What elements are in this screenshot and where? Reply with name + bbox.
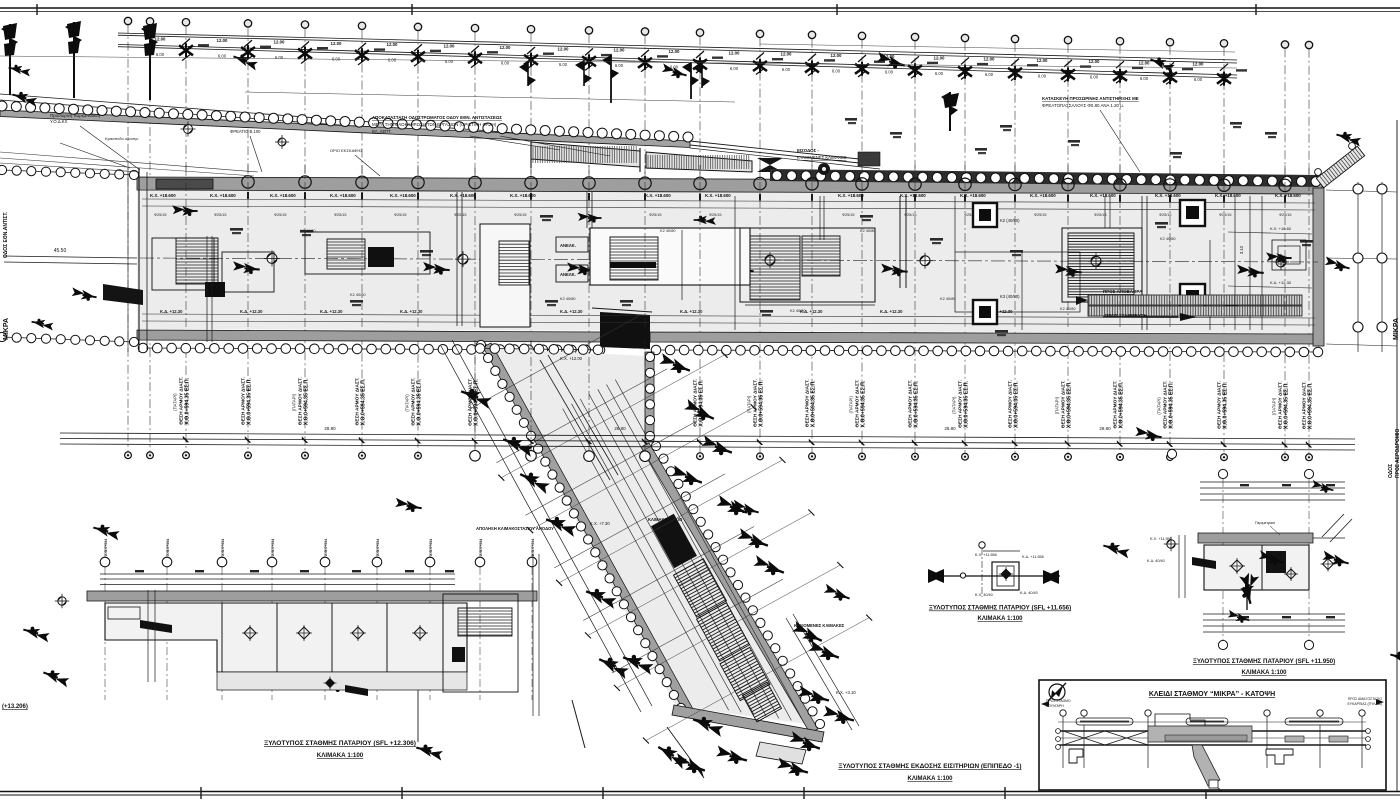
svg-text:Φ25/15: Φ25/15: [394, 213, 407, 217]
svg-text:Χ.Θ.0+594: Χ.Θ.0+594: [479, 539, 483, 556]
svg-text:ΘΕΣΗ ΑΡΜΟΥ ΔΙΑΣΤ.: ΘΕΣΗ ΑΡΜΟΥ ΔΙΑΣΤ.: [297, 377, 303, 425]
svg-text:Κ.Χ. +18.600: Κ.Χ. +18.600: [1090, 193, 1116, 198]
svg-text:ΞΥΛΟΤΥΠΟΣ ΣΤΑΘΜΗΣ ΠΑΤΑΡΙΟΥ (SF: ΞΥΛΟΤΥΠΟΣ ΣΤΑΘΜΗΣ ΠΑΤΑΡΙΟΥ (SFL +11.950): [1193, 658, 1335, 665]
svg-text:6.00: 6.00: [1194, 77, 1203, 82]
svg-text:ΜΕΤΑ ΤΗΝ ΟΛΟΚΛΗΡΩΣΗ ΤΩΝ ΕΡΓΑΣΙ: ΜΕΤΑ ΤΗΝ ΟΛΟΚΛΗΡΩΣΗ ΤΩΝ ΕΡΓΑΣΙΩΝ (ΟΡΙΣΤΙ…: [372, 122, 497, 127]
svg-text:Περιμετρικά: Περιμετρικά: [1255, 521, 1276, 525]
svg-text:Φ25/15: Φ25/15: [649, 213, 662, 217]
svg-text:Κ.Δ. 40/40: Κ.Δ. 40/40: [1020, 591, 1038, 595]
svg-text:6.00: 6.00: [445, 59, 454, 64]
svg-text:Χ.Θ.0+594.35 ΕΣ.Π.: Χ.Θ.0+594.35 ΕΣ.Π.: [360, 378, 366, 425]
svg-text:ΠΡΟΣ ΑΕΡΟΔΡΟΜΙΟ: ΠΡΟΣ ΑΕΡΟΔΡΟΜΙΟ: [1395, 429, 1400, 478]
svg-text:ΑΝΕΛΚ.: ΑΝΕΛΚ.: [560, 243, 576, 248]
svg-text:12.00: 12.00: [500, 45, 512, 50]
svg-text:ΚΥΛΙΟΜΕΝΕΣ ΚΛΙΜΑΚΕΣ: ΚΥΛΙΟΜΕΝΕΣ ΚΛΙΜΑΚΕΣ: [794, 623, 845, 628]
svg-text:Φ25/15: Φ25/15: [1219, 213, 1232, 217]
svg-text:6.00: 6.00: [832, 69, 841, 74]
svg-text:Χ.Θ.0+594: Χ.Θ.0+594: [429, 539, 433, 556]
svg-text:ΚΛΙΜΑΚΑ 1:100: ΚΛΙΜΑΚΑ 1:100: [1241, 670, 1287, 676]
svg-text:Κ2 40/80: Κ2 40/80: [1160, 236, 1176, 241]
svg-text:Κ.Δ. +12.30: Κ.Δ. +12.30: [320, 309, 343, 314]
svg-text:Χ.Θ.0+594: Χ.Θ.0+594: [104, 539, 108, 556]
svg-text:ΚΛΙΜΑΚΑ 1:100: ΚΛΙΜΑΚΑ 1:100: [977, 616, 1023, 622]
svg-text:ΘΕΣΗ ΑΡΜΟΥ ΔΙΑΣΤ.: ΘΕΣΗ ΑΡΜΟΥ ΔΙΑΣΤ.: [1277, 381, 1283, 429]
svg-text:Κ.Δ. +12.30: Κ.Δ. +12.30: [560, 309, 583, 314]
svg-text:Κ2 40/80: Κ2 40/80: [300, 228, 316, 233]
svg-text:12.00: 12.00: [331, 41, 343, 46]
svg-text:ΘΕΣΗ ΑΡΜΟΥ ΔΙΑΣΤ.: ΘΕΣΗ ΑΡΜΟΥ ΔΙΑΣΤ.: [178, 377, 184, 425]
svg-text:ΘΕΣΗ ΑΡΜΟΥ ΔΙΑΣΤ.: ΘΕΣΗ ΑΡΜΟΥ ΔΙΑΣΤ.: [1163, 381, 1169, 429]
svg-text:ΑΠΟΛΗΞΗ ΚΛΙΜΑΚΟΣΤΑΣΙΟΥ ΑΝΟΔΟΥ: ΑΠΟΛΗΞΗ ΚΛΙΜΑΚΟΣΤΑΣΙΟΥ ΑΝΟΔΟΥ: [476, 526, 554, 531]
svg-text:Χ.Θ.0+594.35 ΕΣ.Π.: Χ.Θ.0+594.35 ΕΣ.Π.: [1283, 382, 1289, 429]
svg-text:12.00: 12.00: [614, 48, 626, 53]
svg-text:ΦΡΕΑΤΟΠΑΣΣΑΛΟΥΣ Φ0.80 ΑΝΑ 1.20: ΦΡΕΑΤΟΠΑΣΣΑΛΟΥΣ Φ0.80 ΑΝΑ 1.20 μ.: [1042, 103, 1124, 108]
svg-text:ΚΥΛΙΟΜΕΝΕΣ ΚΛΙΜΑΚΕΣ: ΚΥΛΙΟΜΕΝΕΣ ΚΛΙΜΑΚΕΣ: [797, 155, 847, 160]
svg-text:Κ.Χ. +18.600: Κ.Χ. +18.600: [210, 193, 236, 198]
svg-text:12.00: 12.00: [1089, 59, 1101, 64]
svg-text:ΘΕΣΗ ΑΡΜΟΥ ΔΙΑΣΤ.: ΘΕΣΗ ΑΡΜΟΥ ΔΙΑΣΤ.: [1301, 381, 1307, 429]
svg-text:ΘΕΣΗ ΑΡΜΟΥ ΔΙΑΣΤ.: ΘΕΣΗ ΑΡΜΟΥ ΔΙΑΣΤ.: [752, 379, 758, 427]
svg-text:6.00: 6.00: [730, 66, 739, 71]
svg-text:ΚΛΙΜΑΚΑ 1:100: ΚΛΙΜΑΚΑ 1:100: [907, 776, 953, 782]
svg-text:6.00: 6.00: [1038, 73, 1047, 78]
svg-text:ΑΠΟΚΑΤΑΣΤΑΣΗ ΟΔΟΣΤΡΩΜΑΤΟΣ ΟΔΟΥ: ΑΠΟΚΑΤΑΣΤΑΣΗ ΟΔΟΣΤΡΩΜΑΤΟΣ ΟΔΟΥ ΕΘΝ. ΑΝΤΙ…: [372, 115, 502, 120]
svg-text:Κ.Χ. +18.600: Κ.Χ. +18.600: [705, 193, 731, 198]
svg-text:Φ25/15: Φ25/15: [334, 213, 347, 217]
svg-text:Υ.Ο.Δ.ΚΧ: Υ.Ο.Δ.ΚΧ: [50, 119, 68, 124]
svg-text:6.00: 6.00: [1140, 76, 1149, 81]
svg-text:Κ.Χ. +18.600: Κ.Χ. +18.600: [1030, 193, 1056, 198]
svg-text:ΘΕΣΗ ΑΡΜΟΥ ΔΙΑΣΤ.: ΘΕΣΗ ΑΡΜΟΥ ΔΙΑΣΤ.: [411, 378, 417, 426]
svg-text:6.00: 6.00: [156, 52, 165, 57]
svg-text:Κ2 40/80: Κ2 40/80: [660, 228, 676, 233]
svg-text:ΜΙΚΡΑ: ΜΙΚΡΑ: [3, 318, 10, 340]
svg-text:6.00: 6.00: [615, 63, 624, 68]
svg-text:12.00: 12.00: [217, 38, 229, 43]
svg-text:(ΠΑΤΑΡΙ): (ΠΑΤΑΡΙ): [848, 396, 853, 414]
svg-text:Χ.Θ.0+594.35 ΕΣ.Π.: Χ.Θ.0+594.35 ΕΣ.Π.: [1223, 382, 1229, 429]
svg-text:Κ.Χ. +12.00: Κ.Χ. +12.00: [560, 356, 583, 361]
svg-text:Φ25/15: Φ25/15: [1034, 213, 1047, 217]
svg-text:Κ2 40/80: Κ2 40/80: [790, 308, 806, 313]
svg-text:Χ.Θ.0+594.35 ΕΣ.Π.: Χ.Θ.0+594.35 ΕΣ.Π.: [810, 380, 816, 427]
svg-text:ΠΡΟΣ ΑΠΟΒΑΘΡΑ: ΠΡΟΣ ΑΠΟΒΑΘΡΑ: [1103, 289, 1143, 294]
svg-text:Χ.Θ.0+594: Χ.Θ.0+594: [376, 539, 380, 556]
svg-text:ΘΕΣΗ ΑΡΜΟΥ ΔΙΑΣΤ.: ΘΕΣΗ ΑΡΜΟΥ ΔΙΑΣΤ.: [1061, 380, 1067, 428]
svg-text:Χ.Θ.0+594.35 ΕΣ.Π.: Χ.Θ.0+594.35 ΕΣ.Π.: [247, 378, 253, 425]
svg-text:Κ.Δ. +12.30: Κ.Δ. +12.30: [400, 309, 423, 314]
svg-text:6.00: 6.00: [885, 70, 894, 75]
svg-text:ΘΕΣΗ ΑΡΜΟΥ ΔΙΑΣΤ.: ΘΕΣΗ ΑΡΜΟΥ ΔΙΑΣΤ.: [908, 380, 914, 428]
svg-text:ΒΛ. ΛΕΠΤ.: ΒΛ. ΛΕΠΤ.: [372, 129, 392, 134]
svg-text:Φ25/15: Φ25/15: [514, 213, 527, 217]
svg-text:(ΠΑΤΑΡΙ): (ΠΑΤΑΡΙ): [952, 396, 957, 414]
svg-text:45.50: 45.50: [54, 248, 67, 254]
svg-text:(ΠΑΤΑΡΙ): (ΠΑΤΑΡΙ): [291, 393, 296, 411]
svg-text:3.10: 3.10: [1239, 245, 1244, 254]
svg-text:Κ.Δ. +11.656: Κ.Δ. +11.656: [1022, 555, 1044, 559]
svg-text:ΘΕΣΗ ΑΡΜΟΥ ΔΙΑΣΤ.: ΘΕΣΗ ΑΡΜΟΥ ΔΙΑΣΤ.: [1113, 381, 1119, 429]
svg-text:6.00: 6.00: [218, 54, 227, 59]
svg-text:Χ.Θ.0+594.35 ΕΣ.Π.: Χ.Θ.0+594.35 ΕΣ.Π.: [1307, 382, 1313, 429]
svg-text:Κ.Χ. +18.600: Κ.Χ. +18.600: [960, 193, 986, 198]
svg-text:Χ.Θ.0+594.35 ΕΣ.Π.: Χ.Θ.0+594.35 ΕΣ.Π.: [1169, 381, 1175, 428]
svg-text:Χ.Θ.0+594.35 ΕΣ.Π.: Χ.Θ.0+594.35 ΕΣ.Π.: [964, 380, 970, 427]
svg-text:ΘΕΣΗ ΑΡΜΟΥ ΔΙΑΣΤ.: ΘΕΣΗ ΑΡΜΟΥ ΔΙΑΣΤ.: [854, 380, 860, 428]
svg-text:Χ.Θ.0+594.35 ΕΣ.Π.: Χ.Θ.0+594.35 ΕΣ.Π.: [417, 378, 423, 425]
svg-text:ΑΝΕΛΚ.: ΑΝΕΛΚ.: [560, 272, 576, 277]
svg-text:12.00: 12.00: [274, 40, 286, 45]
svg-text:Χ.Θ.0+594: Χ.Θ.0+594: [166, 539, 170, 556]
svg-text:12.00: 12.00: [831, 53, 843, 58]
svg-text:ΚΛΕΙΔΙ ΣΤΑΘΜΟΥ “ΜΙΚΡΑ” - ΚΑΤΟΨ: ΚΛΕΙΔΙ ΣΤΑΘΜΟΥ “ΜΙΚΡΑ” - ΚΑΤΟΨΗ: [1149, 691, 1275, 698]
svg-text:ΘΕΣΗ ΑΡΜΟΥ ΔΙΑΣΤ.: ΘΕΣΗ ΑΡΜΟΥ ΔΙΑΣΤ.: [958, 380, 964, 428]
svg-text:Κ.Δ. +12.30: Κ.Δ. +12.30: [880, 309, 903, 314]
svg-text:ΠΡΟΣ ΣΤΑΘΜΟ: ΠΡΟΣ ΣΤΑΘΜΟ: [1046, 699, 1071, 703]
svg-text:Κ.Χ. +18.600: Κ.Χ. +18.600: [1215, 193, 1241, 198]
svg-text:Χ.Θ.0+594.35 ΕΣ.Π.: Χ.Θ.0+594.35 ΕΣ.Π.: [1067, 381, 1073, 428]
svg-text:(ΠΑΤΑΡΙ): (ΠΑΤΑΡΙ): [746, 395, 751, 413]
svg-text:ΘΕΣΗ ΑΡΜΟΥ ΔΙΑΣΤ.: ΘΕΣΗ ΑΡΜΟΥ ΔΙΑΣΤ.: [1008, 380, 1014, 428]
svg-text:Χ.Θ.0+594.35 ΕΣ.Π.: Χ.Θ.0+594.35 ΕΣ.Π.: [1119, 381, 1125, 428]
svg-text:(ΠΑΤΑΡΙ): (ΠΑΤΑΡΙ): [1157, 397, 1162, 415]
svg-text:Κ.Χ. +11.950: Κ.Χ. +11.950: [1150, 537, 1172, 541]
svg-text:12.00: 12.00: [984, 57, 996, 62]
svg-text:6.00: 6.00: [559, 62, 568, 67]
svg-text:Χ.Θ.0+594: Χ.Θ.0+594: [221, 539, 225, 556]
svg-text:Κ2 40/80: Κ2 40/80: [860, 228, 876, 233]
svg-text:Χ.Θ.0+594.35 ΕΣ.Π.: Χ.Θ.0+594.35 ΕΣ.Π.: [184, 377, 190, 424]
svg-text:Φ25/15: Φ25/15: [1159, 213, 1172, 217]
svg-text:6.00: 6.00: [985, 72, 994, 77]
svg-text:Κ.Χ. +18.600: Κ.Χ. +18.600: [1155, 193, 1181, 198]
svg-text:12.00: 12.00: [387, 42, 399, 47]
svg-text:Φ25/15: Φ25/15: [214, 213, 227, 217]
svg-text:12.00: 12.00: [558, 46, 570, 51]
svg-text:Κ2 40/80: Κ2 40/80: [350, 292, 366, 297]
svg-text:Χ.Θ.0+594.35 ΕΣ.Π.: Χ.Θ.0+594.35 ΕΣ.Π.: [1014, 381, 1020, 428]
svg-text:Χ.Θ.0+594.35 ΕΣ.Π.: Χ.Θ.0+594.35 ΕΣ.Π.: [758, 380, 764, 427]
svg-text:6.00: 6.00: [501, 61, 510, 66]
svg-text:Κ.Χ. +18.600: Κ.Χ. +18.600: [900, 193, 926, 198]
svg-text:Χ.Θ.0+594.35 ΕΣ.Π.: Χ.Θ.0+594.35 ΕΣ.Π.: [303, 378, 309, 425]
svg-text:(ΠΑΤΑΡΙ): (ΠΑΤΑΡΙ): [1271, 397, 1276, 415]
svg-text:Κ.Χ. +18.600: Κ.Χ. +18.600: [390, 193, 416, 198]
svg-text:Χ.Θ.0+594: Χ.Θ.0+594: [271, 539, 275, 556]
svg-text:Κ2 (40/80): Κ2 (40/80): [1000, 218, 1020, 223]
svg-text:Κ.Χ. +18.600: Κ.Χ. +18.600: [330, 193, 356, 198]
svg-text:Φ25/15: Φ25/15: [274, 213, 287, 217]
svg-text:Κ2 40/80: Κ2 40/80: [560, 296, 576, 301]
svg-text:Κ3 (40/80): Κ3 (40/80): [1000, 294, 1020, 299]
svg-text:6.00: 6.00: [1090, 75, 1099, 80]
svg-text:Κ.Χ. +18.600: Κ.Χ. +18.600: [270, 193, 296, 198]
svg-text:ΟΡΙΟ ΕΚΣΚΑΦΗΣ: ΟΡΙΟ ΕΚΣΚΑΦΗΣ: [330, 148, 363, 153]
svg-text:Κρασπεδο οδοστρ.: Κρασπεδο οδοστρ.: [105, 136, 139, 141]
svg-text:Κ.Δ. 40/40: Κ.Δ. 40/40: [1147, 559, 1165, 563]
svg-text:12.00: 12.00: [1037, 58, 1049, 63]
svg-text:12.00: 12.00: [729, 51, 741, 56]
svg-text:ΚΑΤΑΣΚΕΥΗ ΠΡΟΣΩΡΙΝΗΣ ΑΝΤΙΣΤΗΡΙ: ΚΑΤΑΣΚΕΥΗ ΠΡΟΣΩΡΙΝΗΣ ΑΝΤΙΣΤΗΡΙΞΗΣ ΜΕ: [1042, 96, 1139, 101]
svg-text:ΘΕΣΗ ΑΡΜΟΥ ΔΙΑΣΤ.: ΘΕΣΗ ΑΡΜΟΥ ΔΙΑΣΤ.: [1217, 381, 1223, 429]
svg-text:6.00: 6.00: [935, 71, 944, 76]
svg-text:ΘΕΣΗ ΑΡΜΟΥ ΔΙΑΣΤ.: ΘΕΣΗ ΑΡΜΟΥ ΔΙΑΣΤ.: [804, 379, 810, 427]
svg-text:(ΠΑΤΑΡΙ): (ΠΑΤΑΡΙ): [172, 393, 177, 411]
svg-text:ΟΔΟΣ: ΟΔΟΣ: [1388, 464, 1394, 478]
svg-text:Κ.Χ. +18.60: Κ.Χ. +18.60: [1270, 226, 1292, 231]
svg-text:ΞΥΛΟΤΥΠΟΣ ΣΤΑΘΜΗΣ ΠΑΤΑΡΙΟΥ (SF: ΞΥΛΟΤΥΠΟΣ ΣΤΑΘΜΗΣ ΠΑΤΑΡΙΟΥ (SFL +12.306): [264, 740, 416, 747]
svg-text:Κ.Χ. +3.10: Κ.Χ. +3.10: [836, 690, 856, 695]
svg-text:12.00: 12.00: [1193, 62, 1205, 67]
svg-text:Φ25/15: Φ25/15: [454, 213, 467, 217]
svg-text:6.00: 6.00: [782, 67, 791, 72]
svg-text:Χ.Θ.0+594: Χ.Θ.0+594: [324, 539, 328, 556]
svg-text:6.00: 6.00: [275, 55, 284, 60]
svg-text:Κ2 40/80: Κ2 40/80: [940, 296, 956, 301]
svg-text:Κ.Χ. +18.600: Κ.Χ. +18.600: [510, 193, 536, 198]
svg-text:Κ.Χ. +11.656: Κ.Χ. +11.656: [975, 553, 997, 557]
svg-text:(+13.206): (+13.206): [2, 704, 28, 710]
svg-text:28.80: 28.80: [944, 426, 956, 431]
svg-text:Κ.Χ. +18.600: Κ.Χ. +18.600: [1275, 193, 1301, 198]
svg-text:Χ.Θ.0+594: Χ.Θ.0+594: [531, 539, 535, 556]
svg-text:Φ25/15: Φ25/15: [709, 213, 722, 217]
svg-text:28.80: 28.80: [324, 426, 336, 431]
svg-text:6.00: 6.00: [388, 58, 397, 63]
svg-text:28.80: 28.80: [1099, 426, 1111, 431]
svg-text:12.00: 12.00: [155, 37, 167, 42]
svg-text:Φ25/15: Φ25/15: [842, 213, 855, 217]
svg-text:12.00: 12.00: [781, 52, 793, 57]
svg-text:ΞΥΛΟΤΥΠΟΣ ΣΤΑΘΜΗΣ ΠΑΤΑΡΙΟΥ (SF: ΞΥΛΟΤΥΠΟΣ ΣΤΑΘΜΗΣ ΠΑΤΑΡΙΟΥ (SFL +11.656): [929, 605, 1071, 612]
svg-text:28.80: 28.80: [614, 426, 626, 431]
svg-text:Κ.Δ. +12.30: Κ.Δ. +12.30: [680, 309, 703, 314]
svg-text:ΘΕΣΗ ΑΡΜΟΥ ΔΙΑΣΤ.: ΘΕΣΗ ΑΡΜΟΥ ΔΙΑΣΤ.: [354, 378, 360, 426]
svg-text:Φ25/15: Φ25/15: [154, 213, 167, 217]
svg-text:(ΠΑΤΑΡΙ): (ΠΑΤΑΡΙ): [1055, 396, 1060, 414]
svg-text:12.00: 12.00: [1139, 60, 1151, 65]
svg-text:12.00: 12.00: [934, 55, 946, 60]
svg-text:Προσωρινή παρεμπόδιση: Προσωρινή παρεμπόδιση: [50, 113, 101, 118]
svg-text:Κ.Δ. +12.30: Κ.Δ. +12.30: [1270, 280, 1292, 285]
svg-text:ΚΛΙΜΑΚΑ 1:100: ΚΛΙΜΑΚΑ 1:100: [317, 752, 364, 759]
svg-text:Κ.Χ. 40/40: Κ.Χ. 40/40: [975, 593, 993, 597]
svg-text:ΘΕΣΗ ΑΡΜΟΥ ΔΙΑΣΤ.: ΘΕΣΗ ΑΡΜΟΥ ΔΙΑΣΤ.: [241, 377, 247, 425]
svg-text:(ΠΑΤΑΡΙ): (ΠΑΤΑΡΙ): [405, 394, 410, 412]
svg-text:Κ.Δ. +12.30: Κ.Δ. +12.30: [240, 309, 263, 314]
svg-text:ΘΕΣΗ ΑΡΜΟΥ ΔΙΑΣΤ.: ΘΕΣΗ ΑΡΜΟΥ ΔΙΑΣΤ.: [693, 379, 699, 427]
svg-text:ΞΥΛΟΤΥΠΟΣ ΣΤΑΘΜΗΣ ΕΚΔΟΣΗΣ ΕΙΣΙ: ΞΥΛΟΤΥΠΟΣ ΣΤΑΘΜΗΣ ΕΚΔΟΣΗΣ ΕΙΣΙΤΗΡΙΩΝ (ΕΠ…: [838, 763, 1021, 770]
svg-text:Χ.Θ.0+594.35 ΕΣ.Π.: Χ.Θ.0+594.35 ΕΣ.Π.: [914, 380, 920, 427]
svg-text:6.00: 6.00: [332, 56, 341, 61]
svg-text:Κ.Χ. +18.600: Κ.Χ. +18.600: [645, 193, 671, 198]
svg-text:ΕΙΣΟΔΟΣ -: ΕΙΣΟΔΟΣ -: [797, 148, 819, 153]
svg-text:ΘΕΣΗ ΑΡΜΟΥ ΔΙΑΣΤ.: ΘΕΣΗ ΑΡΜΟΥ ΔΙΑΣΤ.: [468, 378, 474, 426]
svg-text:Κ.Χ. +18.600: Κ.Χ. +18.600: [838, 193, 864, 198]
svg-text:12.00: 12.00: [669, 49, 681, 54]
svg-text:Κ.Χ. +7.30: Κ.Χ. +7.30: [590, 521, 610, 526]
svg-text:ΜΙΚΡΑ: ΜΙΚΡΑ: [1393, 318, 1400, 340]
svg-text:Κ.Χ. +18.600: Κ.Χ. +18.600: [150, 193, 176, 198]
svg-text:Κ.Δ. +12.30: Κ.Δ. +12.30: [160, 309, 183, 314]
svg-text:Χ.Θ.0+594.35 ΕΣ.Π.: Χ.Θ.0+594.35 ΕΣ.Π.: [860, 380, 866, 427]
svg-text:ΦΡΕΑΤΙΟ Β.100: ΦΡΕΑΤΙΟ Β.100: [230, 129, 261, 134]
svg-text:12.00: 12.00: [444, 44, 456, 49]
svg-text:Κ.Χ. +18.600: Κ.Χ. +18.600: [450, 193, 476, 198]
svg-text:ΟΔΟΣ ΕΘΝ.ΑΝΤΙΣΤ.: ΟΔΟΣ ΕΘΝ.ΑΝΤΙΣΤ.: [3, 211, 9, 258]
